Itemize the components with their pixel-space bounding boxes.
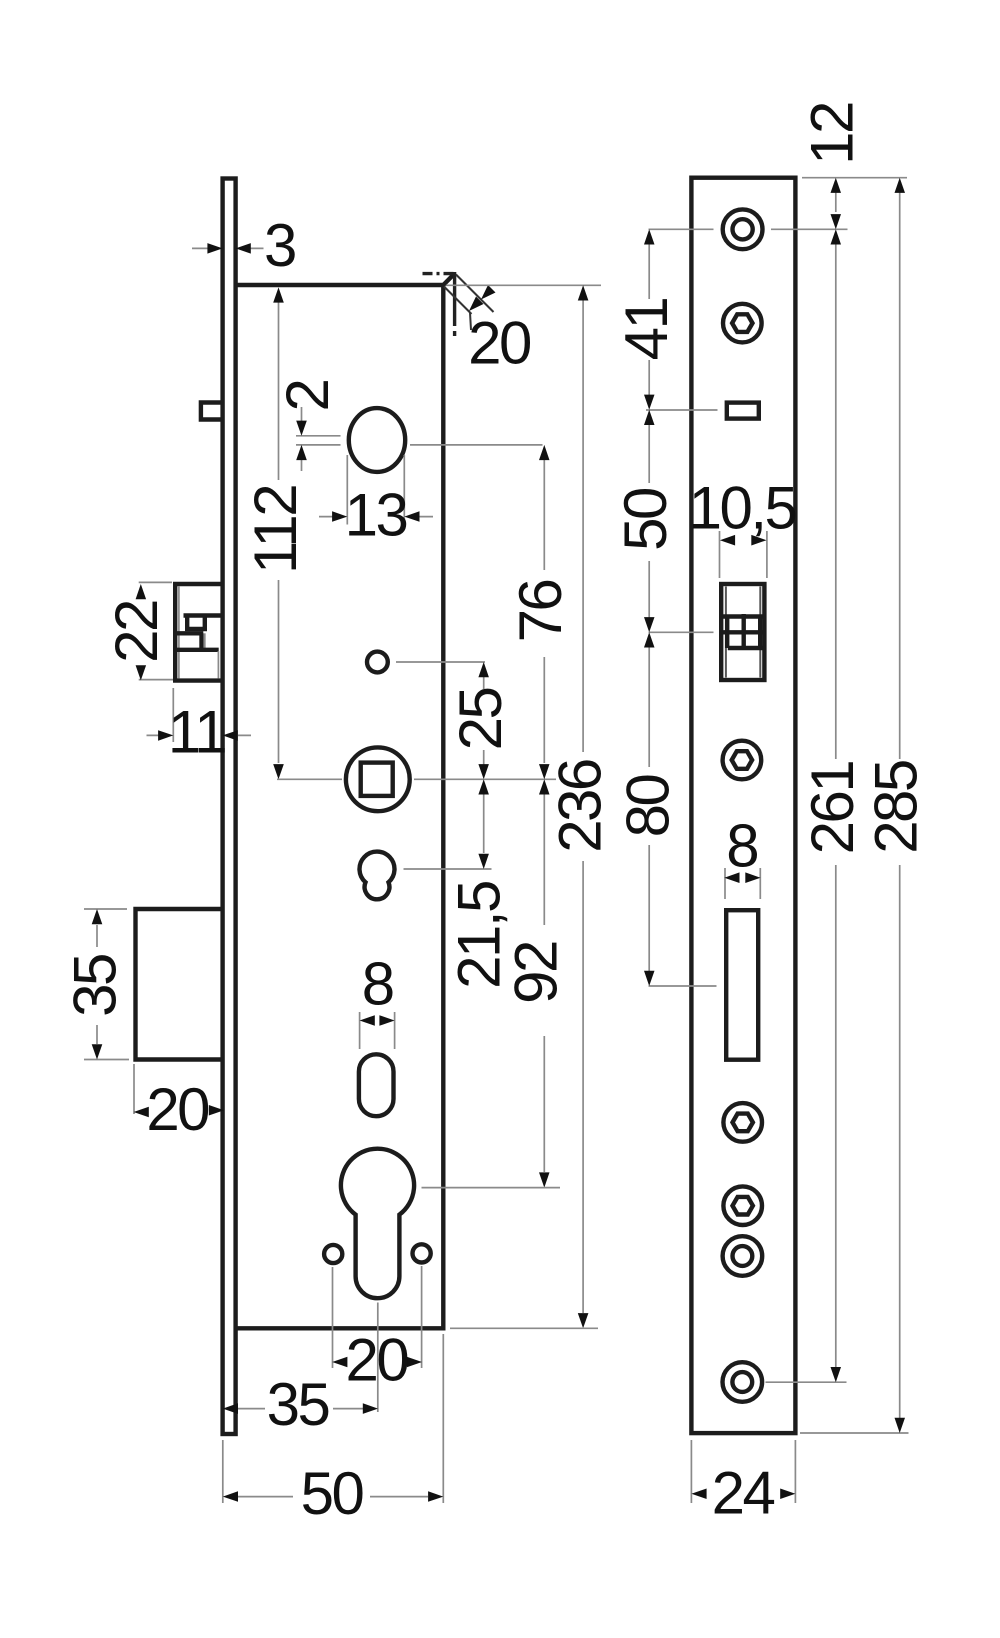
svg-text:3: 3 (264, 212, 295, 279)
svg-text:22: 22 (103, 601, 170, 663)
svg-text:35: 35 (267, 1371, 329, 1438)
svg-text:92: 92 (503, 942, 570, 1004)
svg-text:50: 50 (612, 488, 679, 551)
svg-text:76: 76 (507, 581, 574, 643)
svg-text:20: 20 (468, 310, 531, 377)
svg-text:11: 11 (168, 698, 225, 765)
svg-text:25: 25 (447, 689, 514, 751)
svg-text:35: 35 (62, 955, 129, 1017)
svg-text:24: 24 (712, 1460, 775, 1527)
svg-text:236: 236 (547, 760, 614, 853)
svg-text:10,5: 10,5 (689, 475, 796, 542)
svg-text:112: 112 (242, 486, 309, 574)
svg-text:80: 80 (615, 775, 682, 838)
svg-text:20: 20 (346, 1326, 409, 1393)
svg-text:12: 12 (799, 103, 866, 165)
svg-text:13: 13 (345, 482, 407, 549)
svg-text:50: 50 (301, 1460, 364, 1527)
svg-text:20: 20 (146, 1076, 209, 1143)
svg-text:41: 41 (613, 299, 680, 361)
svg-text:8: 8 (362, 951, 393, 1018)
svg-text:285: 285 (863, 761, 930, 854)
svg-text:2: 2 (274, 380, 341, 411)
svg-text:261: 261 (799, 762, 866, 855)
svg-text:8: 8 (726, 813, 757, 880)
